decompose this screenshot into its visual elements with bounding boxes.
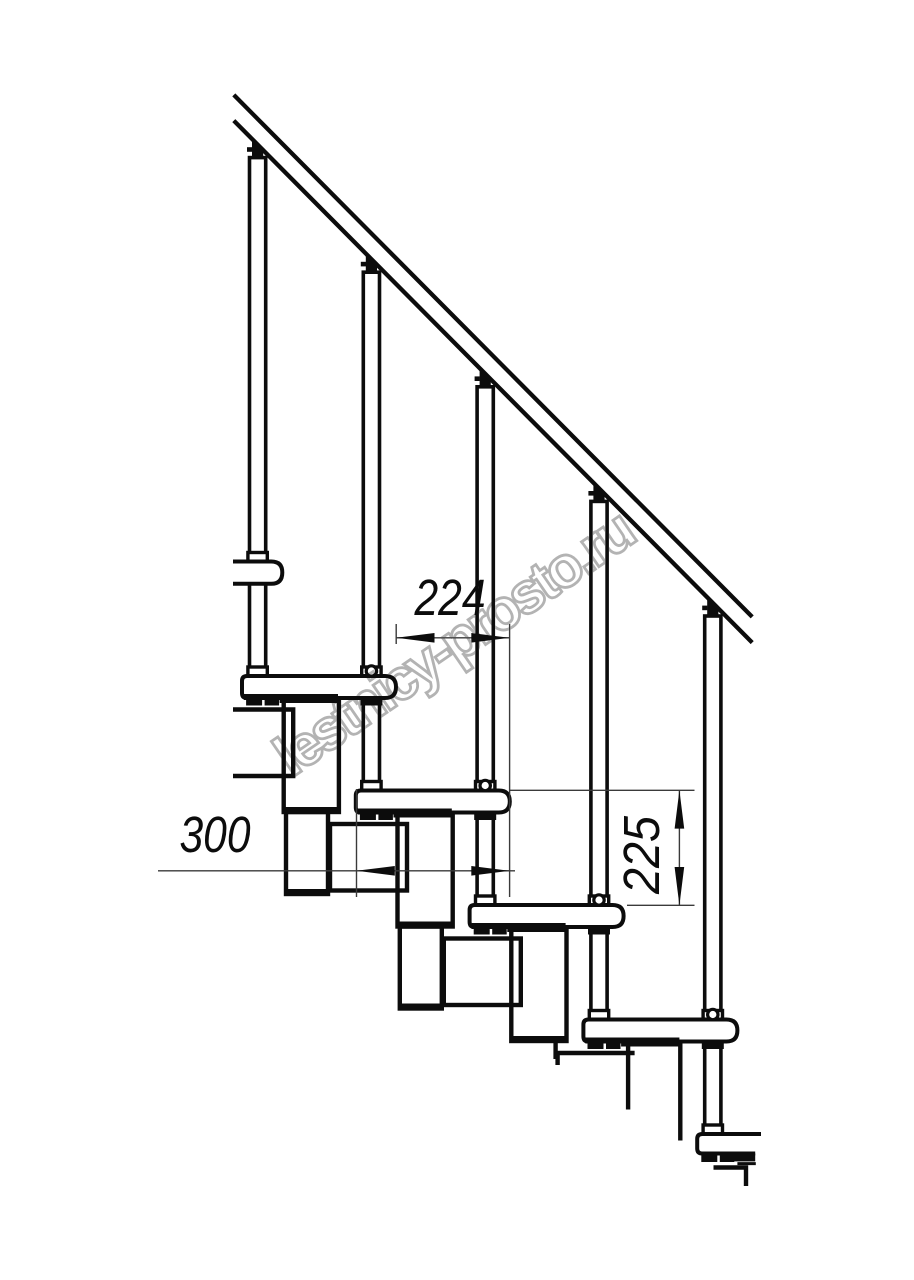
svg-text:300: 300 [180,806,251,863]
svg-text:225: 225 [613,815,670,894]
